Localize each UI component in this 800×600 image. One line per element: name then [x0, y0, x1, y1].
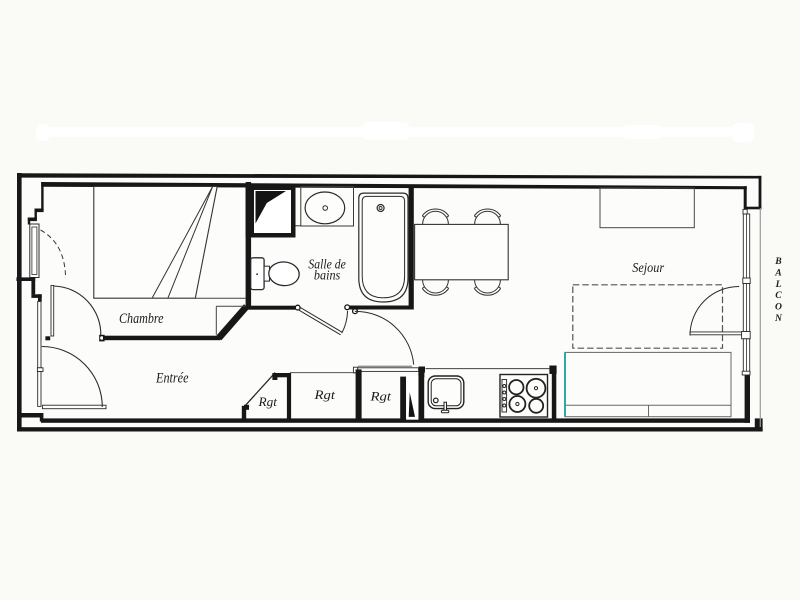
- svg-text:A: A: [774, 267, 781, 278]
- svg-text:B: B: [774, 256, 782, 267]
- svg-text:Chambre: Chambre: [119, 311, 164, 327]
- svg-text:O: O: [775, 302, 782, 313]
- svg-text:Rgt: Rgt: [257, 395, 277, 409]
- svg-text:Rgt: Rgt: [369, 390, 391, 404]
- svg-text:C: C: [775, 290, 782, 301]
- svg-text:Entrée: Entrée: [155, 370, 189, 386]
- svg-text:bains: bains: [314, 268, 340, 283]
- svg-text:Rgt: Rgt: [313, 388, 335, 402]
- svg-text:Sejour: Sejour: [632, 261, 664, 276]
- svg-text:L: L: [775, 279, 782, 290]
- svg-text:N: N: [774, 313, 783, 324]
